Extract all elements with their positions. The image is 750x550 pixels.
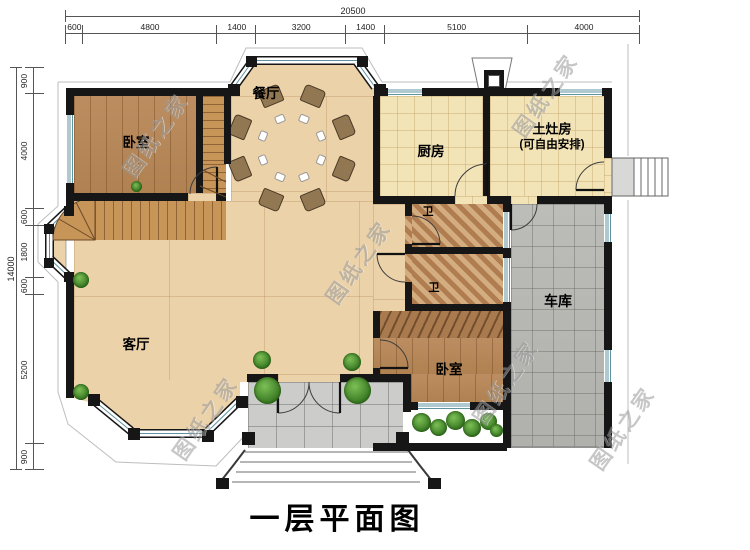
dim-line — [527, 25, 528, 44]
dim-line — [10, 67, 22, 68]
plant — [253, 351, 271, 369]
dim-label: 600 — [19, 210, 29, 224]
dim-label: 1800 — [19, 242, 29, 261]
plant — [344, 377, 371, 404]
room-label-garage: 车库 — [544, 291, 572, 311]
dim-line — [255, 25, 256, 44]
plant — [73, 384, 89, 400]
dim-label: 5200 — [19, 360, 29, 379]
dim-line — [384, 25, 385, 44]
dim-line — [25, 469, 44, 470]
dim-label: 900 — [19, 74, 29, 88]
plant — [73, 272, 89, 288]
dim-line — [639, 10, 640, 22]
dim-line — [65, 10, 66, 22]
dim-line — [16, 68, 17, 470]
dim-line — [25, 443, 44, 444]
room-label-bath-upper: 卫 — [423, 203, 434, 219]
dim-line — [25, 277, 44, 278]
dim-line — [25, 67, 44, 68]
dim-line — [639, 25, 640, 44]
plant — [412, 413, 431, 432]
room-label-bedroom2: 卧室 — [436, 358, 463, 378]
door-arcs — [190, 162, 604, 413]
plant — [430, 419, 447, 436]
dim-line — [25, 225, 44, 226]
dim-line — [25, 93, 44, 94]
dim-total-top: 20500 — [340, 6, 365, 16]
page-title: 一层平面图 — [250, 494, 425, 538]
dim-line — [66, 33, 640, 34]
room-label-kitchen: 厨房 — [418, 140, 445, 160]
dim-line — [216, 25, 217, 44]
dim-line — [10, 469, 22, 470]
dim-label: 5100 — [447, 22, 466, 32]
dim-label: 4000 — [19, 142, 29, 161]
room-label-living: 客厅 — [123, 333, 150, 353]
dim-line — [33, 68, 34, 470]
plant — [254, 377, 281, 404]
dim-total-left: 14000 — [6, 256, 16, 281]
plant — [343, 353, 361, 371]
dim-label: 1400 — [356, 22, 375, 32]
dim-label: 600 — [19, 279, 29, 293]
room-label-dining: 餐厅 — [253, 82, 280, 102]
stair-landing-treads — [200, 170, 226, 197]
dim-label: 4800 — [141, 22, 160, 32]
dim-label: 900 — [19, 450, 29, 464]
room-label-bath-lower: 卫 — [429, 279, 440, 295]
plan-overlay — [0, 0, 750, 550]
dim-line — [65, 25, 66, 44]
dim-label: 3200 — [292, 22, 311, 32]
dim-line — [345, 25, 346, 44]
dim-label: 4000 — [575, 22, 594, 32]
plant — [131, 181, 142, 192]
dim-line — [82, 25, 83, 44]
floor-plan: 卧室 餐厅 厨房 土灶房 (可自由安排) 卫 卫 客厅 车库 卧室 一层平面图 … — [0, 0, 750, 550]
dim-label: 600 — [67, 22, 81, 32]
dim-line — [25, 294, 44, 295]
dim-line — [66, 16, 640, 17]
dim-line — [25, 208, 44, 209]
dim-label: 1400 — [227, 22, 246, 32]
